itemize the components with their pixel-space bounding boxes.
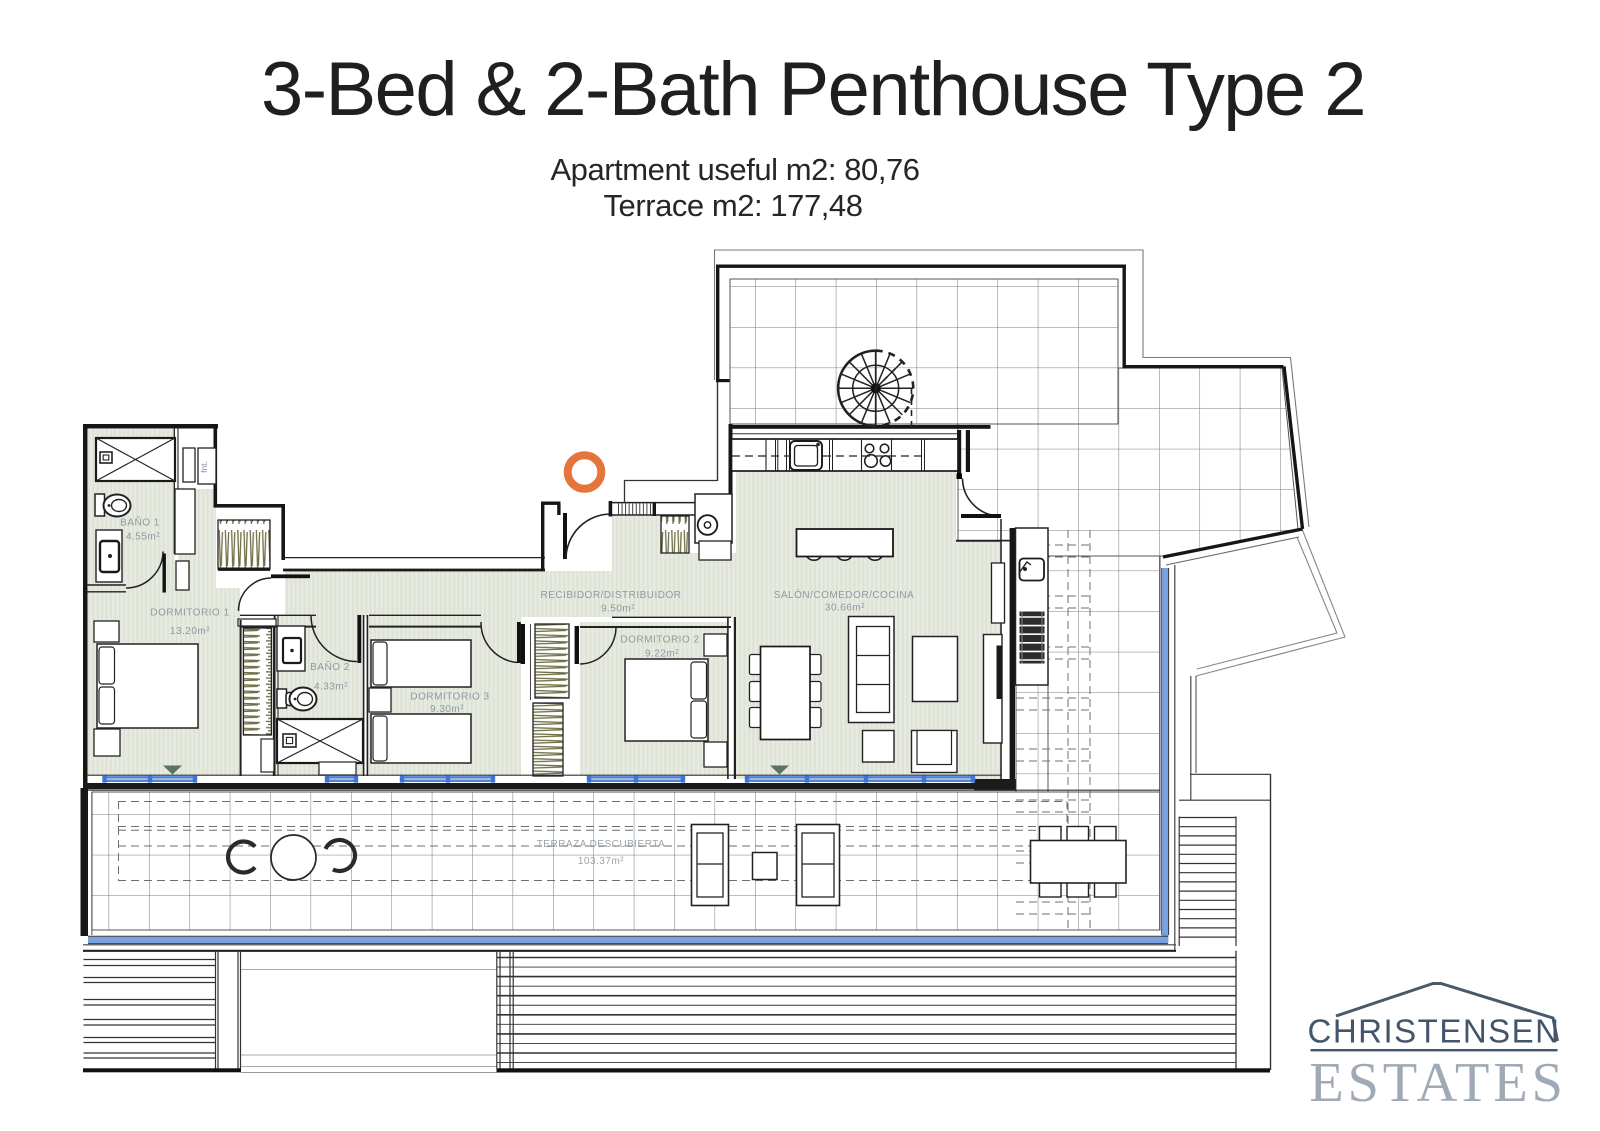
svg-text:Terrace m2: 177,48: Terrace m2: 177,48 xyxy=(604,188,863,223)
svg-text:4.55m²: 4.55m² xyxy=(126,532,160,543)
svg-text:13.20m²: 13.20m² xyxy=(170,626,210,637)
svg-text:103.37m²: 103.37m² xyxy=(578,856,624,867)
svg-text:9.22m²: 9.22m² xyxy=(645,649,679,660)
svg-text:DORMITORIO 1: DORMITORIO 1 xyxy=(150,608,229,619)
svg-text:4.33m²: 4.33m² xyxy=(314,682,348,693)
svg-text:BAÑO 2: BAÑO 2 xyxy=(310,660,350,673)
svg-text:CHRISTENSEN: CHRISTENSEN xyxy=(1307,1013,1560,1050)
svg-text:30.66m²: 30.66m² xyxy=(825,603,865,614)
svg-text:DORMITORIO 3: DORMITORIO 3 xyxy=(410,692,489,703)
svg-text:9.50m²: 9.50m² xyxy=(601,604,635,615)
svg-text:SALÓN/COMEDOR/COCINA: SALÓN/COMEDOR/COCINA xyxy=(774,588,915,601)
svg-text:TERRAZA DESCUBIERTA: TERRAZA DESCUBIERTA xyxy=(537,839,666,850)
svg-text:fnt.: fnt. xyxy=(199,461,209,473)
svg-text:9.30m²: 9.30m² xyxy=(430,704,464,715)
svg-text:ESTATES: ESTATES xyxy=(1309,1052,1567,1114)
svg-text:Apartment useful m2: 80,76: Apartment useful m2: 80,76 xyxy=(550,152,919,187)
svg-text:RECIBIDOR/DISTRIBUIDOR: RECIBIDOR/DISTRIBUIDOR xyxy=(540,590,681,601)
svg-text:3-Bed & 2-Bath Penthouse Type: 3-Bed & 2-Bath Penthouse Type 2 xyxy=(261,47,1365,132)
svg-text:DORMITORIO 2: DORMITORIO 2 xyxy=(620,635,699,646)
svg-text:BAÑO 1: BAÑO 1 xyxy=(120,516,160,529)
